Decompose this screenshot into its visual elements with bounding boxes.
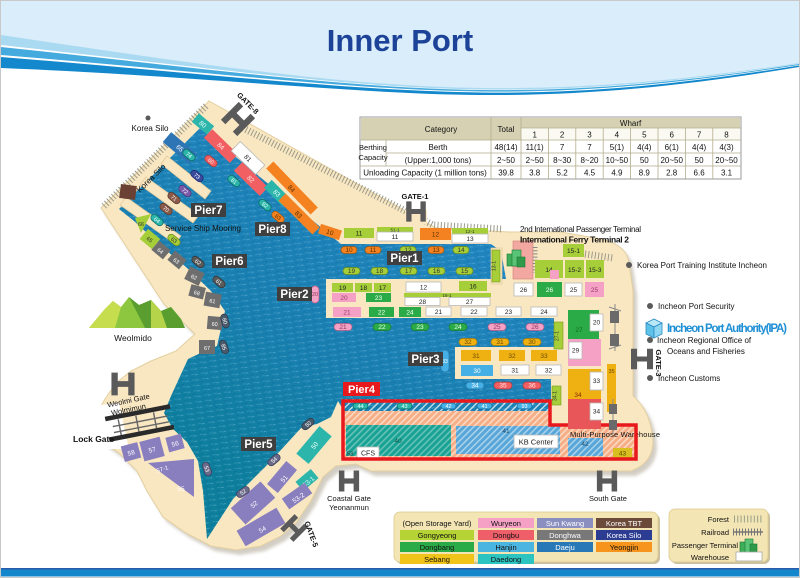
svg-text:21: 21 <box>339 324 347 331</box>
svg-text:20~50: 20~50 <box>660 156 683 165</box>
svg-text:11: 11 <box>392 234 399 241</box>
svg-text:Warehouse: Warehouse <box>691 553 729 562</box>
svg-text:Inner Port: Inner Port <box>327 23 473 58</box>
svg-text:Sebang: Sebang <box>424 555 450 564</box>
svg-text:Dongbu: Dongbu <box>493 531 519 540</box>
svg-text:Korea Port Training Institute: Korea Port Training Institute Incheon <box>637 261 767 270</box>
svg-text:Lock Gate: Lock Gate <box>73 434 114 444</box>
svg-text:50: 50 <box>695 156 704 165</box>
svg-text:Incheon Port Authority(IPA): Incheon Port Authority(IPA) <box>667 323 787 335</box>
svg-text:Pier2: Pier2 <box>280 289 308 301</box>
svg-text:33: 33 <box>540 353 548 360</box>
svg-text:32: 32 <box>464 339 472 346</box>
svg-text:29: 29 <box>572 348 580 355</box>
svg-text:33: 33 <box>442 359 448 365</box>
svg-text:34: 34 <box>574 392 582 399</box>
svg-text:55: 55 <box>177 486 185 493</box>
svg-text:Pier3: Pier3 <box>411 354 439 366</box>
svg-text:Pier4: Pier4 <box>348 384 376 396</box>
svg-text:44: 44 <box>357 404 363 410</box>
svg-text:Coastal Gate: Coastal Gate <box>327 494 371 503</box>
svg-text:5(1): 5(1) <box>610 143 625 152</box>
svg-text:32: 32 <box>545 368 553 375</box>
svg-text:34: 34 <box>593 409 601 416</box>
svg-text:Passenger Terminal: Passenger Terminal <box>672 541 738 550</box>
svg-text:23: 23 <box>375 295 383 302</box>
svg-text:1: 1 <box>532 131 537 140</box>
svg-text:42: 42 <box>445 404 451 410</box>
svg-text:14: 14 <box>457 247 465 254</box>
svg-text:43: 43 <box>619 451 627 458</box>
svg-text:26: 26 <box>546 287 554 294</box>
svg-text:24: 24 <box>454 324 462 331</box>
svg-text:7: 7 <box>587 143 592 152</box>
svg-text:KB Center: KB Center <box>519 438 554 447</box>
svg-text:Forest: Forest <box>708 515 730 524</box>
svg-text:Pier7: Pier7 <box>194 205 222 217</box>
svg-text:Weolmido: Weolmido <box>114 333 152 343</box>
svg-text:Hanjin: Hanjin <box>495 543 516 552</box>
svg-text:Multi-Purpose Warehouse: Multi-Purpose Warehouse <box>570 430 660 439</box>
svg-text:17: 17 <box>379 285 387 292</box>
svg-text:8~30: 8~30 <box>553 156 572 165</box>
svg-text:12-1: 12-1 <box>465 229 475 234</box>
svg-text:11(1): 11(1) <box>526 143 544 152</box>
svg-text:30: 30 <box>473 368 481 375</box>
svg-text:2~50: 2~50 <box>497 156 516 165</box>
svg-text:67: 67 <box>204 346 210 352</box>
svg-text:23: 23 <box>505 309 513 316</box>
svg-text:10~50: 10~50 <box>606 156 629 165</box>
svg-text:Wuryeon: Wuryeon <box>491 519 521 528</box>
svg-text:22: 22 <box>378 310 386 317</box>
svg-text:Incheon Customs: Incheon Customs <box>658 374 720 383</box>
svg-text:8.9: 8.9 <box>639 169 651 178</box>
svg-text:4(3): 4(3) <box>719 143 734 152</box>
svg-text:Dongbang: Dongbang <box>420 543 455 552</box>
svg-text:15-3: 15-3 <box>588 267 601 274</box>
svg-text:CFS: CFS <box>361 451 375 458</box>
svg-text:21: 21 <box>435 309 443 316</box>
svg-text:Donghwa: Donghwa <box>549 531 582 540</box>
svg-text:2: 2 <box>560 131 565 140</box>
svg-text:4(4): 4(4) <box>637 143 652 152</box>
svg-text:Incheon Regional Office of: Incheon Regional Office of <box>657 336 752 345</box>
svg-text:6(1): 6(1) <box>665 143 680 152</box>
svg-text:Daeju: Daeju <box>555 543 575 552</box>
svg-text:Korea Silo: Korea Silo <box>607 531 642 540</box>
svg-text:50: 50 <box>640 156 649 165</box>
svg-text:Pier1: Pier1 <box>390 253 419 265</box>
svg-text:35: 35 <box>499 383 507 390</box>
svg-text:4(4): 4(4) <box>692 143 707 152</box>
svg-text:22: 22 <box>378 324 386 331</box>
svg-text:20: 20 <box>593 320 601 327</box>
svg-text:30: 30 <box>528 339 536 346</box>
svg-text:Berth: Berth <box>428 143 447 152</box>
svg-text:48(14): 48(14) <box>494 143 517 152</box>
svg-text:24: 24 <box>406 310 414 317</box>
svg-text:12: 12 <box>432 232 440 239</box>
svg-text:33: 33 <box>593 378 601 385</box>
svg-text:5: 5 <box>642 131 647 140</box>
svg-text:Unloading Capacity (1 million: Unloading Capacity (1 million tons) <box>363 169 487 178</box>
svg-text:93: 93 <box>521 404 527 410</box>
svg-text:GATE-3: GATE-3 <box>654 350 663 377</box>
svg-text:11: 11 <box>370 247 377 254</box>
svg-text:Total: Total <box>498 125 515 134</box>
svg-text:3: 3 <box>587 131 592 140</box>
svg-text:13-1: 13-1 <box>492 261 498 271</box>
svg-text:Yeonanmun: Yeonanmun <box>329 503 369 512</box>
svg-text:53: 53 <box>347 452 353 458</box>
svg-text:17: 17 <box>405 268 413 275</box>
svg-text:16: 16 <box>433 268 441 275</box>
svg-text:Capacity: Capacity <box>358 153 387 162</box>
svg-text:Berthing: Berthing <box>359 143 387 152</box>
svg-text:Oceans and Fisheries: Oceans and Fisheries <box>667 347 745 356</box>
svg-text:7: 7 <box>560 143 565 152</box>
svg-text:15-1: 15-1 <box>567 248 580 255</box>
svg-text:42: 42 <box>581 441 589 448</box>
svg-text:22: 22 <box>470 309 478 316</box>
svg-text:2nd International Passenger Te: 2nd International Passenger Terminal <box>520 225 641 234</box>
svg-text:3.8: 3.8 <box>529 169 541 178</box>
svg-text:4.5: 4.5 <box>584 169 596 178</box>
svg-text:Korea TBT: Korea TBT <box>606 519 643 528</box>
svg-text:11: 11 <box>356 231 363 238</box>
svg-text:35: 35 <box>608 369 614 375</box>
svg-text:GATE-5: GATE-5 <box>303 520 321 548</box>
svg-text:6: 6 <box>669 131 674 140</box>
svg-text:28: 28 <box>419 299 427 306</box>
svg-text:18: 18 <box>360 285 368 292</box>
svg-text:43: 43 <box>401 404 407 410</box>
svg-text:Pier6: Pier6 <box>215 256 243 268</box>
svg-text:12: 12 <box>420 285 428 292</box>
svg-text:19: 19 <box>348 268 356 275</box>
svg-text:Incheon Port Security: Incheon Port Security <box>658 302 734 311</box>
svg-text:10: 10 <box>345 247 353 254</box>
svg-text:41: 41 <box>481 404 487 410</box>
svg-text:Service Ship Mooring: Service Ship Mooring <box>165 224 241 233</box>
svg-text:(Open Storage Yard): (Open Storage Yard) <box>403 519 472 528</box>
svg-text:40: 40 <box>394 438 402 445</box>
svg-text:Railroad: Railroad <box>701 528 729 537</box>
svg-text:Category: Category <box>425 125 457 134</box>
svg-text:Daedong: Daedong <box>491 555 521 564</box>
svg-text:Wharf: Wharf <box>620 119 642 128</box>
svg-text:25: 25 <box>591 287 599 294</box>
svg-text:21: 21 <box>343 310 351 317</box>
svg-text:26: 26 <box>531 324 539 331</box>
svg-text:31: 31 <box>511 368 519 375</box>
svg-text:20: 20 <box>340 295 348 302</box>
svg-text:31: 31 <box>496 339 504 346</box>
svg-text:7: 7 <box>697 131 702 140</box>
svg-text:Gongyeong: Gongyeong <box>418 531 457 540</box>
svg-text:27: 27 <box>466 299 474 306</box>
svg-text:3.1: 3.1 <box>721 169 733 178</box>
svg-text:Pier5: Pier5 <box>244 439 273 451</box>
svg-text:16: 16 <box>469 284 477 291</box>
svg-text:27-1: 27-1 <box>555 331 561 341</box>
svg-text:32: 32 <box>508 353 516 360</box>
svg-text:34-1: 34-1 <box>553 391 559 401</box>
svg-text:13: 13 <box>432 247 440 254</box>
svg-text:20~50: 20~50 <box>715 156 738 165</box>
svg-text:61: 61 <box>209 298 216 305</box>
svg-text:26: 26 <box>520 287 528 294</box>
svg-text:24: 24 <box>540 309 548 316</box>
svg-text:31: 31 <box>472 353 480 360</box>
svg-text:Sun Kwang: Sun Kwang <box>546 519 584 528</box>
svg-text:66: 66 <box>138 222 144 228</box>
svg-text:International Ferry Terminal 2: International Ferry Terminal 2 <box>520 235 629 245</box>
svg-text:41: 41 <box>502 428 510 435</box>
svg-text:4.9: 4.9 <box>611 169 623 178</box>
svg-text:Yeongjin: Yeongjin <box>610 543 639 552</box>
svg-text:Korea Silo: Korea Silo <box>132 124 169 133</box>
svg-text:2~50: 2~50 <box>526 156 545 165</box>
svg-text:18: 18 <box>376 268 384 275</box>
svg-text:39.8: 39.8 <box>498 169 514 178</box>
svg-text:Pier8: Pier8 <box>258 224 287 236</box>
svg-text:34: 34 <box>471 383 479 390</box>
svg-text:South Gate: South Gate <box>589 494 627 503</box>
svg-text:13: 13 <box>466 236 474 243</box>
svg-text:8: 8 <box>724 131 729 140</box>
svg-text:27: 27 <box>575 327 583 334</box>
svg-text:20: 20 <box>312 292 318 298</box>
svg-text:23: 23 <box>416 324 424 331</box>
svg-text:19: 19 <box>339 285 347 292</box>
svg-text:GATE-1: GATE-1 <box>402 192 429 201</box>
svg-text:15-2: 15-2 <box>568 267 581 274</box>
svg-text:25: 25 <box>570 287 578 294</box>
svg-text:5.2: 5.2 <box>557 169 569 178</box>
svg-text:15: 15 <box>461 268 469 275</box>
svg-text:16-1: 16-1 <box>442 293 452 298</box>
svg-text:60: 60 <box>211 322 218 329</box>
svg-text:6.6: 6.6 <box>694 169 706 178</box>
svg-text:4: 4 <box>615 131 620 140</box>
svg-text:8~20: 8~20 <box>580 156 599 165</box>
svg-text:(Upper:1,000 tons): (Upper:1,000 tons) <box>405 156 472 165</box>
svg-text:2.8: 2.8 <box>666 169 678 178</box>
svg-text:36: 36 <box>528 383 536 390</box>
svg-text:25: 25 <box>493 324 501 331</box>
